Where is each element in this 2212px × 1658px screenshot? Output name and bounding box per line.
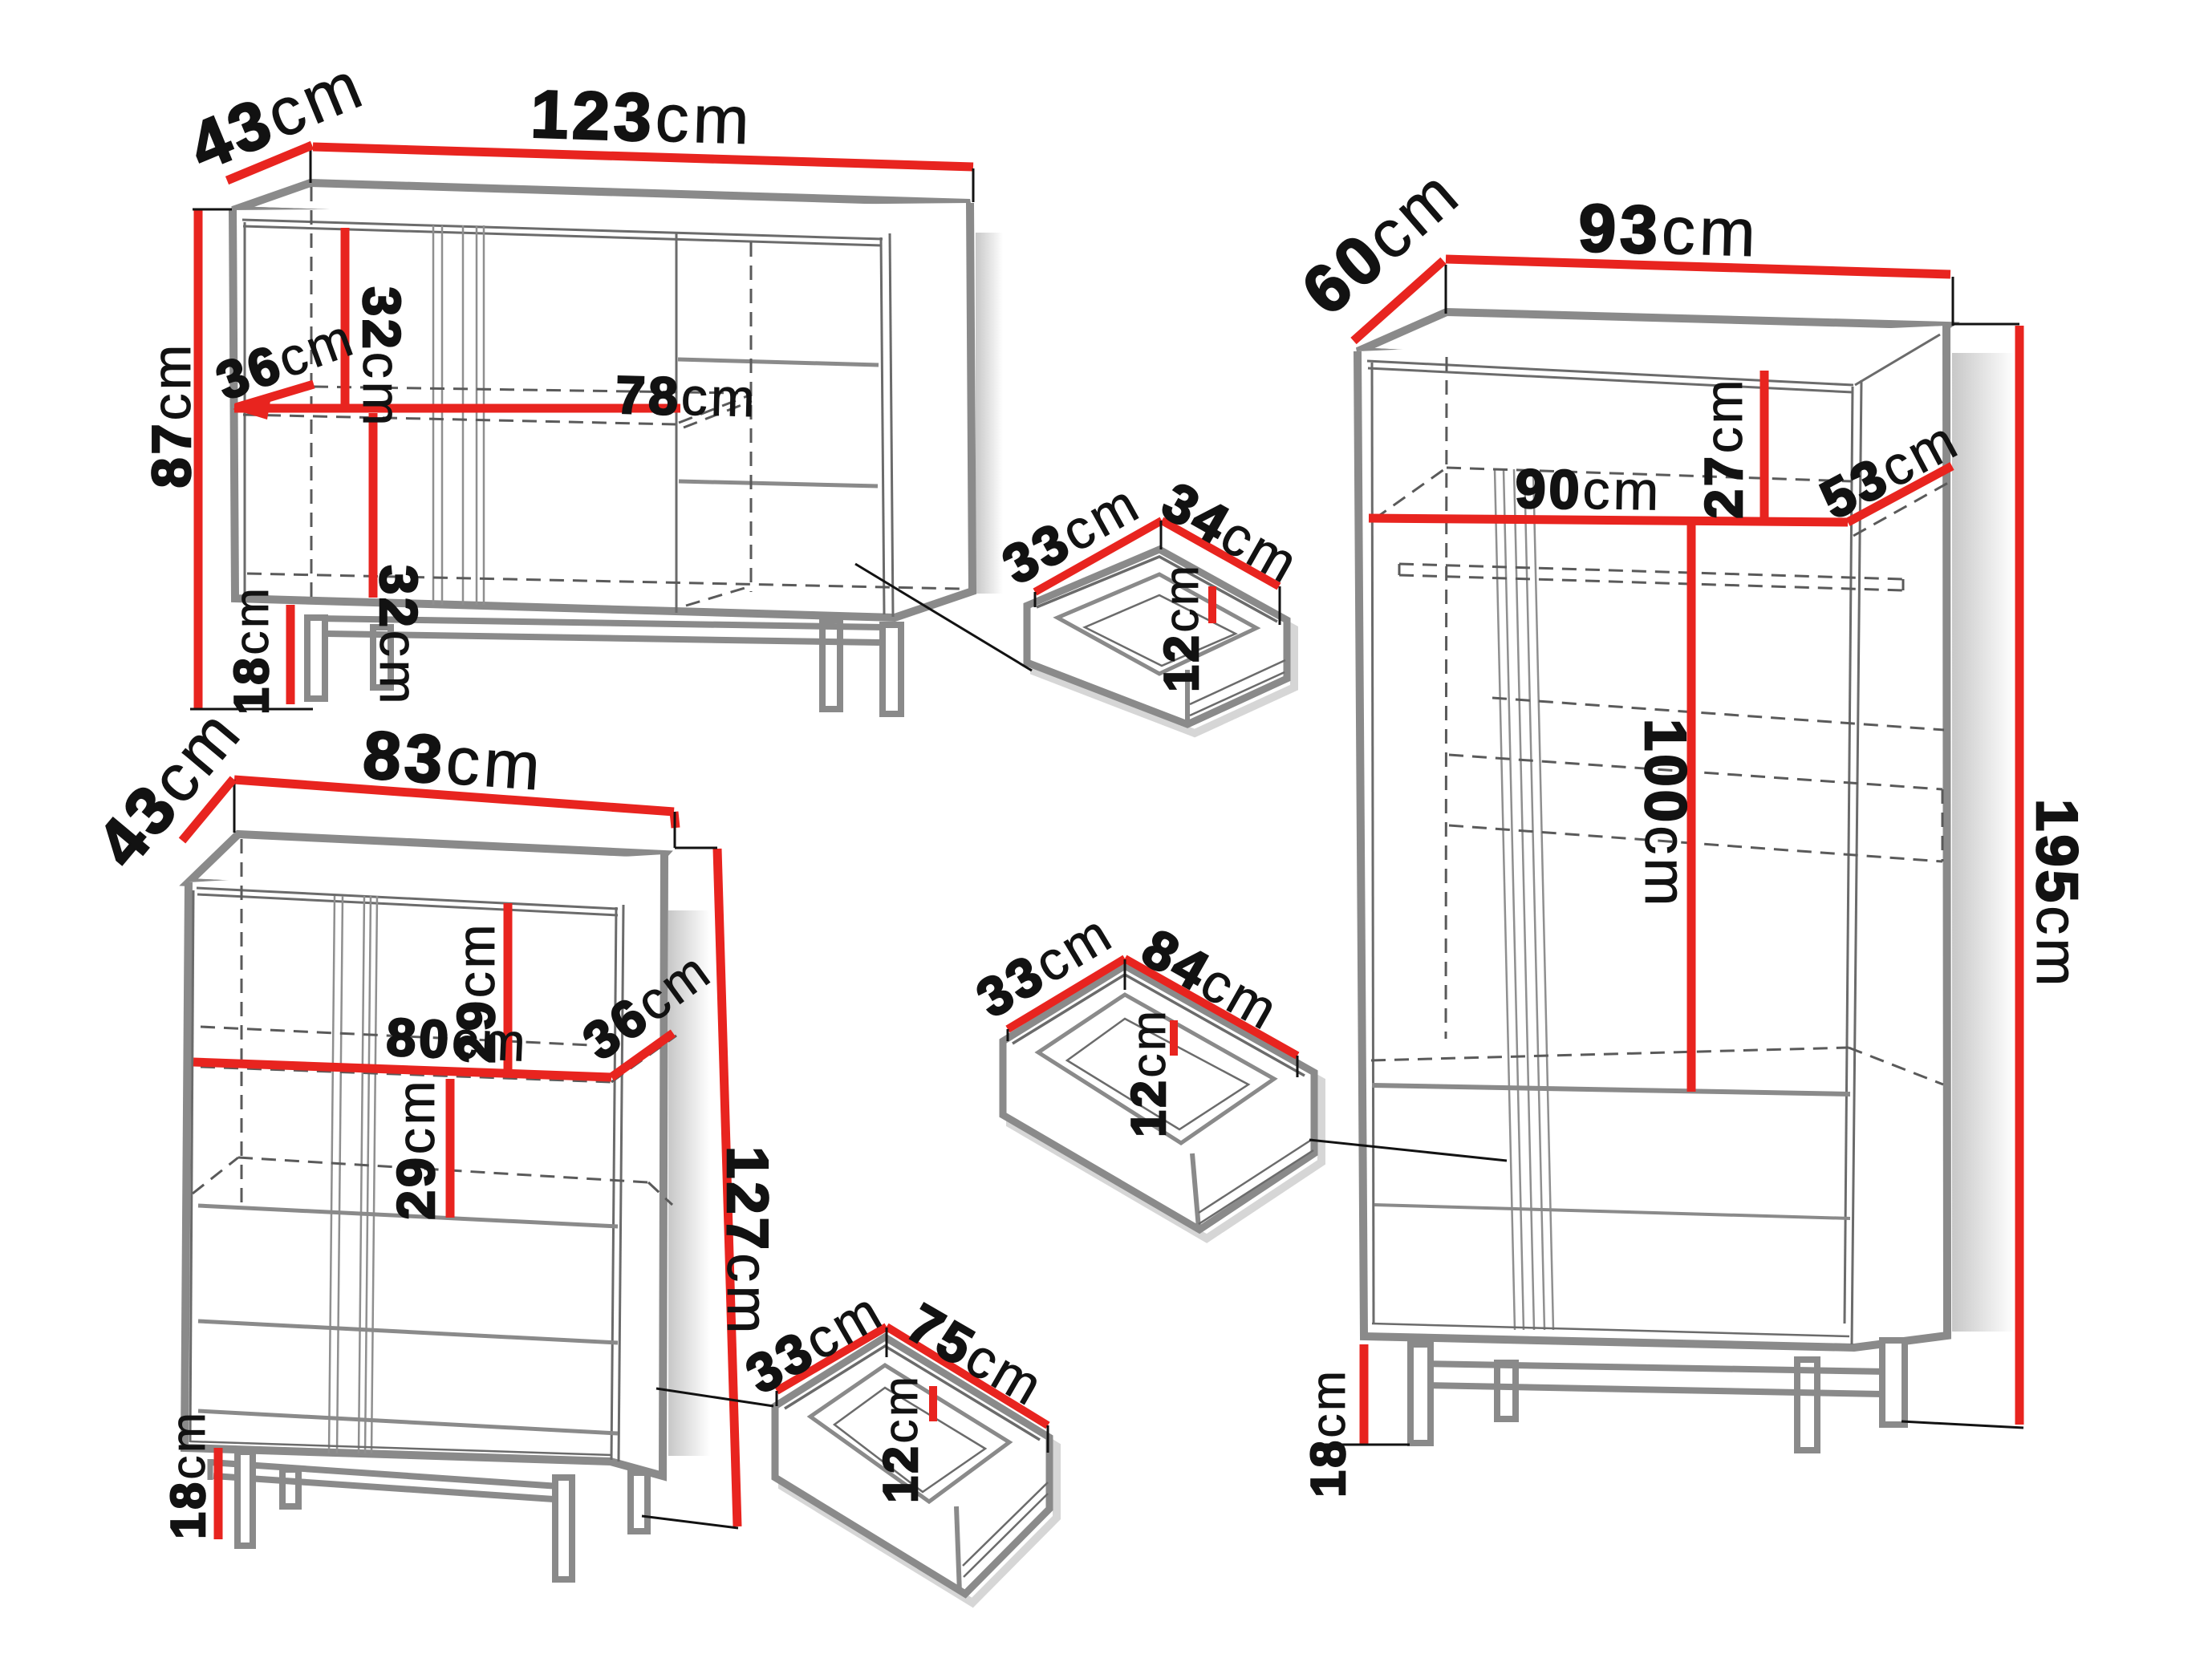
svg-text:18cm: 18cm [1301, 1368, 1355, 1497]
svg-text:80cm: 80cm [385, 1007, 530, 1073]
svg-text:93cm: 93cm [1577, 190, 1760, 271]
svg-text:18cm: 18cm [161, 1409, 215, 1538]
svg-text:195cm: 195cm [2024, 799, 2088, 990]
svg-text:100cm: 100cm [1633, 719, 1697, 910]
svg-text:12cm: 12cm [1122, 1007, 1175, 1137]
svg-text:12cm: 12cm [874, 1373, 927, 1502]
svg-text:123cm: 123cm [530, 76, 754, 159]
svg-text:127cm: 127cm [715, 1146, 779, 1337]
svg-text:78cm: 78cm [615, 365, 759, 428]
svg-text:12cm: 12cm [1155, 562, 1208, 691]
svg-text:27cm: 27cm [1694, 376, 1753, 518]
svg-text:32cm: 32cm [369, 565, 428, 707]
svg-text:83cm: 83cm [361, 716, 547, 805]
svg-text:90cm: 90cm [1515, 458, 1662, 521]
svg-text:87cm: 87cm [141, 342, 202, 488]
svg-text:29cm: 29cm [386, 1077, 445, 1219]
svg-text:18cm: 18cm [225, 585, 278, 714]
